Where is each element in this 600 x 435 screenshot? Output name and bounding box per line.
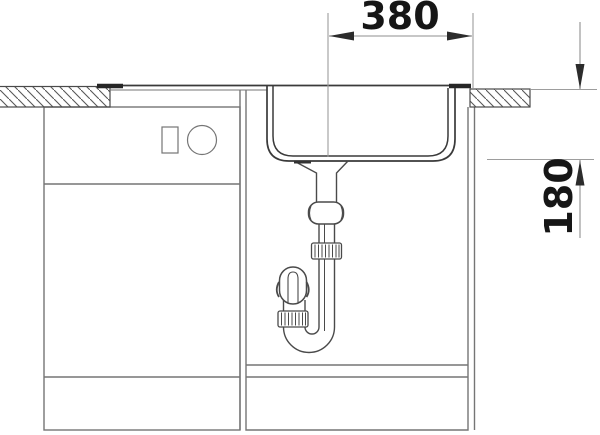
wall-hatch-left xyxy=(0,87,110,108)
arrow-down-icon xyxy=(576,64,585,89)
pipe-coupling-lower xyxy=(278,311,308,327)
drawing-canvas: 380 180 xyxy=(0,0,600,435)
dimension-depth-label: 180 xyxy=(537,157,581,236)
countertop-hatch-right xyxy=(470,89,530,107)
base-cabinet-sink xyxy=(246,90,468,430)
base-cabinet-left xyxy=(44,107,240,430)
sink-basin-outer xyxy=(267,86,455,161)
round-knob xyxy=(188,126,217,155)
arrow-left-icon xyxy=(329,32,354,41)
drain-funnel xyxy=(294,161,348,180)
sink-basin-inner xyxy=(273,86,448,156)
countertop xyxy=(0,87,530,108)
pipe-coupling-upper xyxy=(312,243,342,259)
sink-section-drawing: 380 180 xyxy=(0,0,600,435)
dimension-depth: 180 xyxy=(487,22,597,238)
dimension-width: 380 xyxy=(328,0,473,157)
square-indicator xyxy=(162,127,178,153)
arrow-right-icon xyxy=(447,32,472,41)
slip-nut xyxy=(309,202,344,224)
sink xyxy=(97,86,471,162)
base-cabinets xyxy=(44,90,475,430)
dimension-width-label: 380 xyxy=(360,0,439,38)
drain-assembly xyxy=(277,161,348,353)
